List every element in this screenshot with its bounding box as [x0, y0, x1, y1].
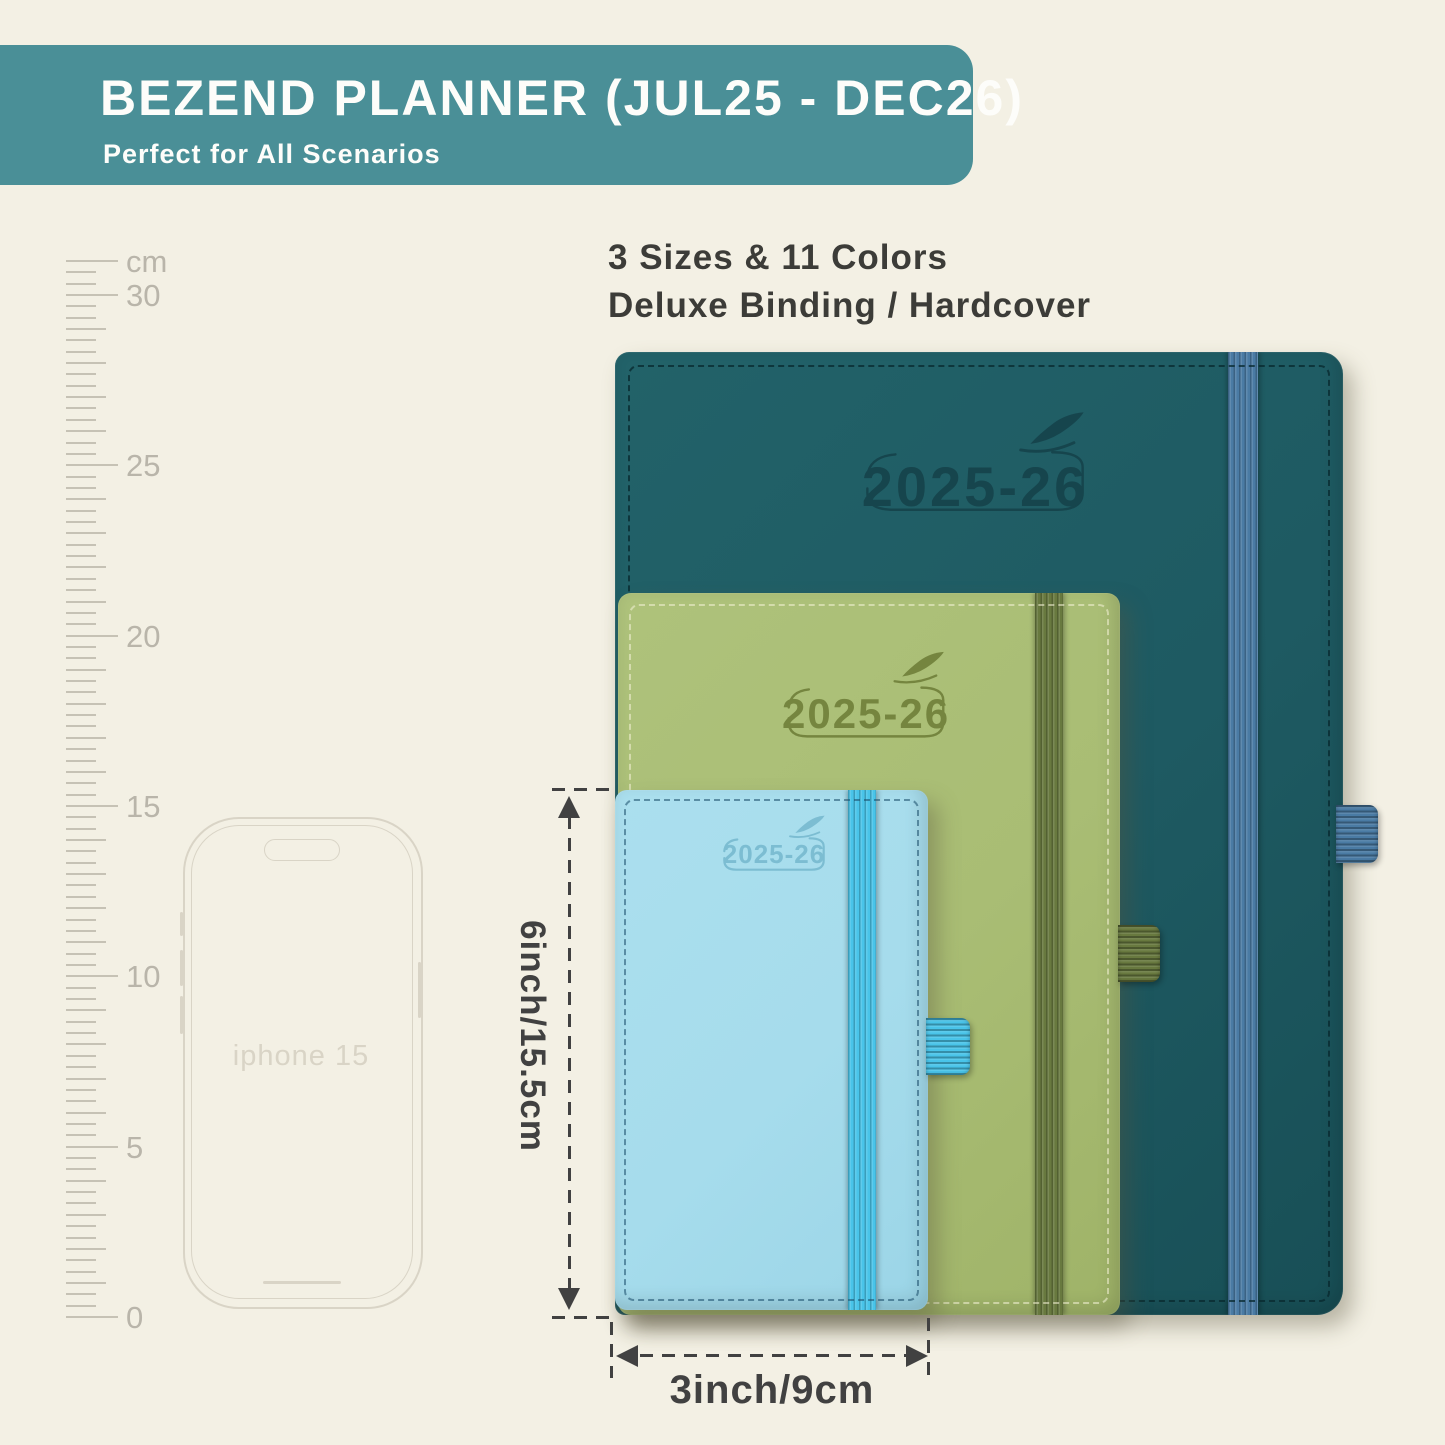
ruler-tick	[66, 1191, 96, 1193]
ruler-tick	[66, 510, 96, 512]
ruler-tick	[66, 578, 96, 580]
product-image: BEZEND PLANNER (JUL25 - DEC26) Perfect f…	[0, 0, 1445, 1445]
dim-width-arrow-right	[906, 1345, 928, 1367]
year-label-medium: 2025-26	[782, 690, 950, 738]
ruler-tick	[66, 1089, 96, 1091]
cover-logo-small: 2025-26	[720, 814, 828, 872]
elastic-band-small	[848, 790, 876, 1310]
ruler-tick	[66, 1043, 106, 1045]
cover-logo-large: 2025-26	[858, 410, 1092, 514]
dim-width-arrow-left	[616, 1345, 638, 1367]
ruler-tick	[66, 964, 96, 966]
ruler-tick	[66, 839, 106, 841]
ruler-label-cm: cm	[126, 244, 167, 280]
ruler-tick	[66, 430, 106, 432]
ruler-tick	[66, 498, 106, 500]
dim-height-line	[568, 816, 571, 1292]
ruler-tick	[66, 1066, 96, 1068]
feature-line-binding: Deluxe Binding / Hardcover	[608, 286, 1091, 326]
ruler-tick	[66, 419, 96, 421]
ruler-tick	[66, 362, 106, 364]
ruler-tick	[66, 1248, 106, 1250]
ruler-tick	[66, 782, 96, 784]
ruler-tick	[66, 691, 96, 693]
ruler-label-0: 0	[126, 1300, 143, 1336]
ruler-tick	[66, 794, 96, 796]
ruler-tick	[66, 283, 96, 285]
ruler-tick	[66, 487, 96, 489]
ruler-tick	[66, 953, 96, 955]
ruler-tick	[66, 396, 106, 398]
ruler-tick	[66, 635, 118, 637]
ruler-tick	[66, 975, 118, 977]
ruler-tick	[66, 544, 96, 546]
phone-volume-down-button	[180, 996, 183, 1034]
dim-width-ext-left	[610, 1322, 613, 1378]
year-label-large: 2025-26	[858, 454, 1092, 519]
ruler-tick	[66, 1225, 96, 1227]
ruler-tick	[66, 930, 96, 932]
pen-loop-medium	[1118, 925, 1160, 982]
ruler-tick	[66, 1021, 96, 1023]
ruler-tick	[66, 1078, 106, 1080]
ruler-tick	[66, 1293, 96, 1295]
ruler-tick	[66, 260, 118, 262]
ruler-tick	[66, 896, 96, 898]
pen-loop-small	[926, 1018, 970, 1075]
phone-dynamic-island	[264, 839, 340, 861]
ruler-label-30: 30	[126, 278, 160, 314]
dim-height-arrow-down	[558, 1288, 580, 1310]
ruler-tick	[66, 1055, 96, 1057]
ruler-tick	[66, 1180, 106, 1182]
ruler-tick	[66, 464, 118, 466]
ruler-tick	[66, 328, 106, 330]
ruler-tick	[66, 941, 106, 943]
ruler-tick	[66, 271, 96, 273]
ruler-tick	[66, 680, 96, 682]
ruler-tick	[66, 305, 96, 307]
ruler-tick	[66, 1271, 96, 1273]
ruler-tick	[66, 1100, 96, 1102]
ruler-tick	[66, 407, 96, 409]
dim-height-cap-top	[552, 788, 614, 791]
phone-mute-switch	[180, 912, 183, 936]
ruler-tick	[66, 725, 96, 727]
ruler-tick	[66, 476, 96, 478]
ruler-tick	[66, 987, 96, 989]
ruler-label-5: 5	[126, 1130, 143, 1166]
dim-height-cap-bottom	[552, 1316, 614, 1319]
ruler-tick	[66, 453, 96, 455]
ruler-tick	[66, 612, 96, 614]
ruler-label-25: 25	[126, 448, 160, 484]
ruler-tick	[66, 601, 106, 603]
page-subtitle: Perfect for All Scenarios	[103, 139, 441, 170]
ruler-tick	[66, 623, 96, 625]
year-label-small: 2025-26	[720, 839, 828, 870]
ruler-tick	[66, 521, 96, 523]
ruler-tick	[66, 1112, 106, 1114]
ruler-tick	[66, 351, 96, 353]
ruler-tick	[66, 566, 106, 568]
ruler-tick	[66, 850, 96, 852]
ruler-tick	[66, 862, 96, 864]
dim-width-line	[640, 1354, 906, 1357]
ruler-tick	[66, 1305, 96, 1307]
ruler-tick	[66, 805, 118, 807]
ruler-tick	[66, 703, 106, 705]
ruler-tick	[66, 1237, 96, 1239]
cover-logo-medium: 2025-26	[782, 650, 950, 748]
ruler-tick	[66, 646, 96, 648]
ruler-tick	[66, 1202, 96, 1204]
ruler-tick	[66, 714, 96, 716]
ruler-label-20: 20	[126, 619, 160, 655]
ruler-tick	[66, 998, 96, 1000]
elastic-band-large	[1228, 352, 1258, 1315]
ruler-tick	[66, 1123, 96, 1125]
ruler-tick	[66, 532, 106, 534]
ruler-tick	[66, 873, 106, 875]
ruler-tick	[66, 294, 118, 296]
ruler-tick	[66, 385, 96, 387]
ruler-tick	[66, 1157, 96, 1159]
ruler-tick	[66, 339, 96, 341]
ruler-tick	[66, 442, 96, 444]
ruler-tick	[66, 1134, 96, 1136]
ruler-tick	[66, 1214, 106, 1216]
title-banner: BEZEND PLANNER (JUL25 - DEC26) Perfect f…	[0, 45, 973, 185]
ruler-tick	[66, 657, 96, 659]
ruler-tick	[66, 884, 96, 886]
ruler-tick	[66, 828, 96, 830]
ruler-tick	[66, 737, 106, 739]
ruler-tick	[66, 669, 106, 671]
ruler-tick	[66, 373, 96, 375]
phone-volume-up-button	[180, 950, 183, 986]
ruler-tick	[66, 1009, 106, 1011]
ruler-label-10: 10	[126, 959, 160, 995]
dim-width-label: 3inch/9cm	[670, 1368, 875, 1413]
ruler-tick	[66, 907, 106, 909]
ruler-tick	[66, 1282, 106, 1284]
phone-bottom-port	[263, 1281, 341, 1284]
ruler-tick	[66, 748, 96, 750]
dim-height-arrow-up	[558, 796, 580, 818]
ruler-tick	[66, 919, 96, 921]
ruler-tick	[66, 771, 106, 773]
phone-power-button	[418, 962, 421, 1018]
ruler-tick	[66, 1316, 118, 1318]
page-title: BEZEND PLANNER (JUL25 - DEC26)	[100, 69, 1024, 127]
ruler-tick	[66, 1146, 118, 1148]
ruler-tick	[66, 1168, 96, 1170]
dim-height-label: 6inch/15.5cm	[512, 920, 552, 1152]
ruler-tick	[66, 589, 96, 591]
feather-icon	[894, 650, 952, 686]
ruler-tick	[66, 555, 96, 557]
ruler-tick	[66, 816, 96, 818]
ruler-tick	[66, 1032, 96, 1034]
planner-small: 2025-26	[615, 790, 928, 1310]
pen-loop-large	[1336, 805, 1378, 863]
ruler-tick	[66, 760, 96, 762]
ruler-label-15: 15	[126, 789, 160, 825]
elastic-band-medium	[1035, 593, 1063, 1315]
feature-line-sizes: 3 Sizes & 11 Colors	[608, 238, 948, 278]
phone-label: iphone 15	[233, 1040, 369, 1073]
ruler-tick	[66, 317, 96, 319]
ruler-tick	[66, 1259, 96, 1261]
